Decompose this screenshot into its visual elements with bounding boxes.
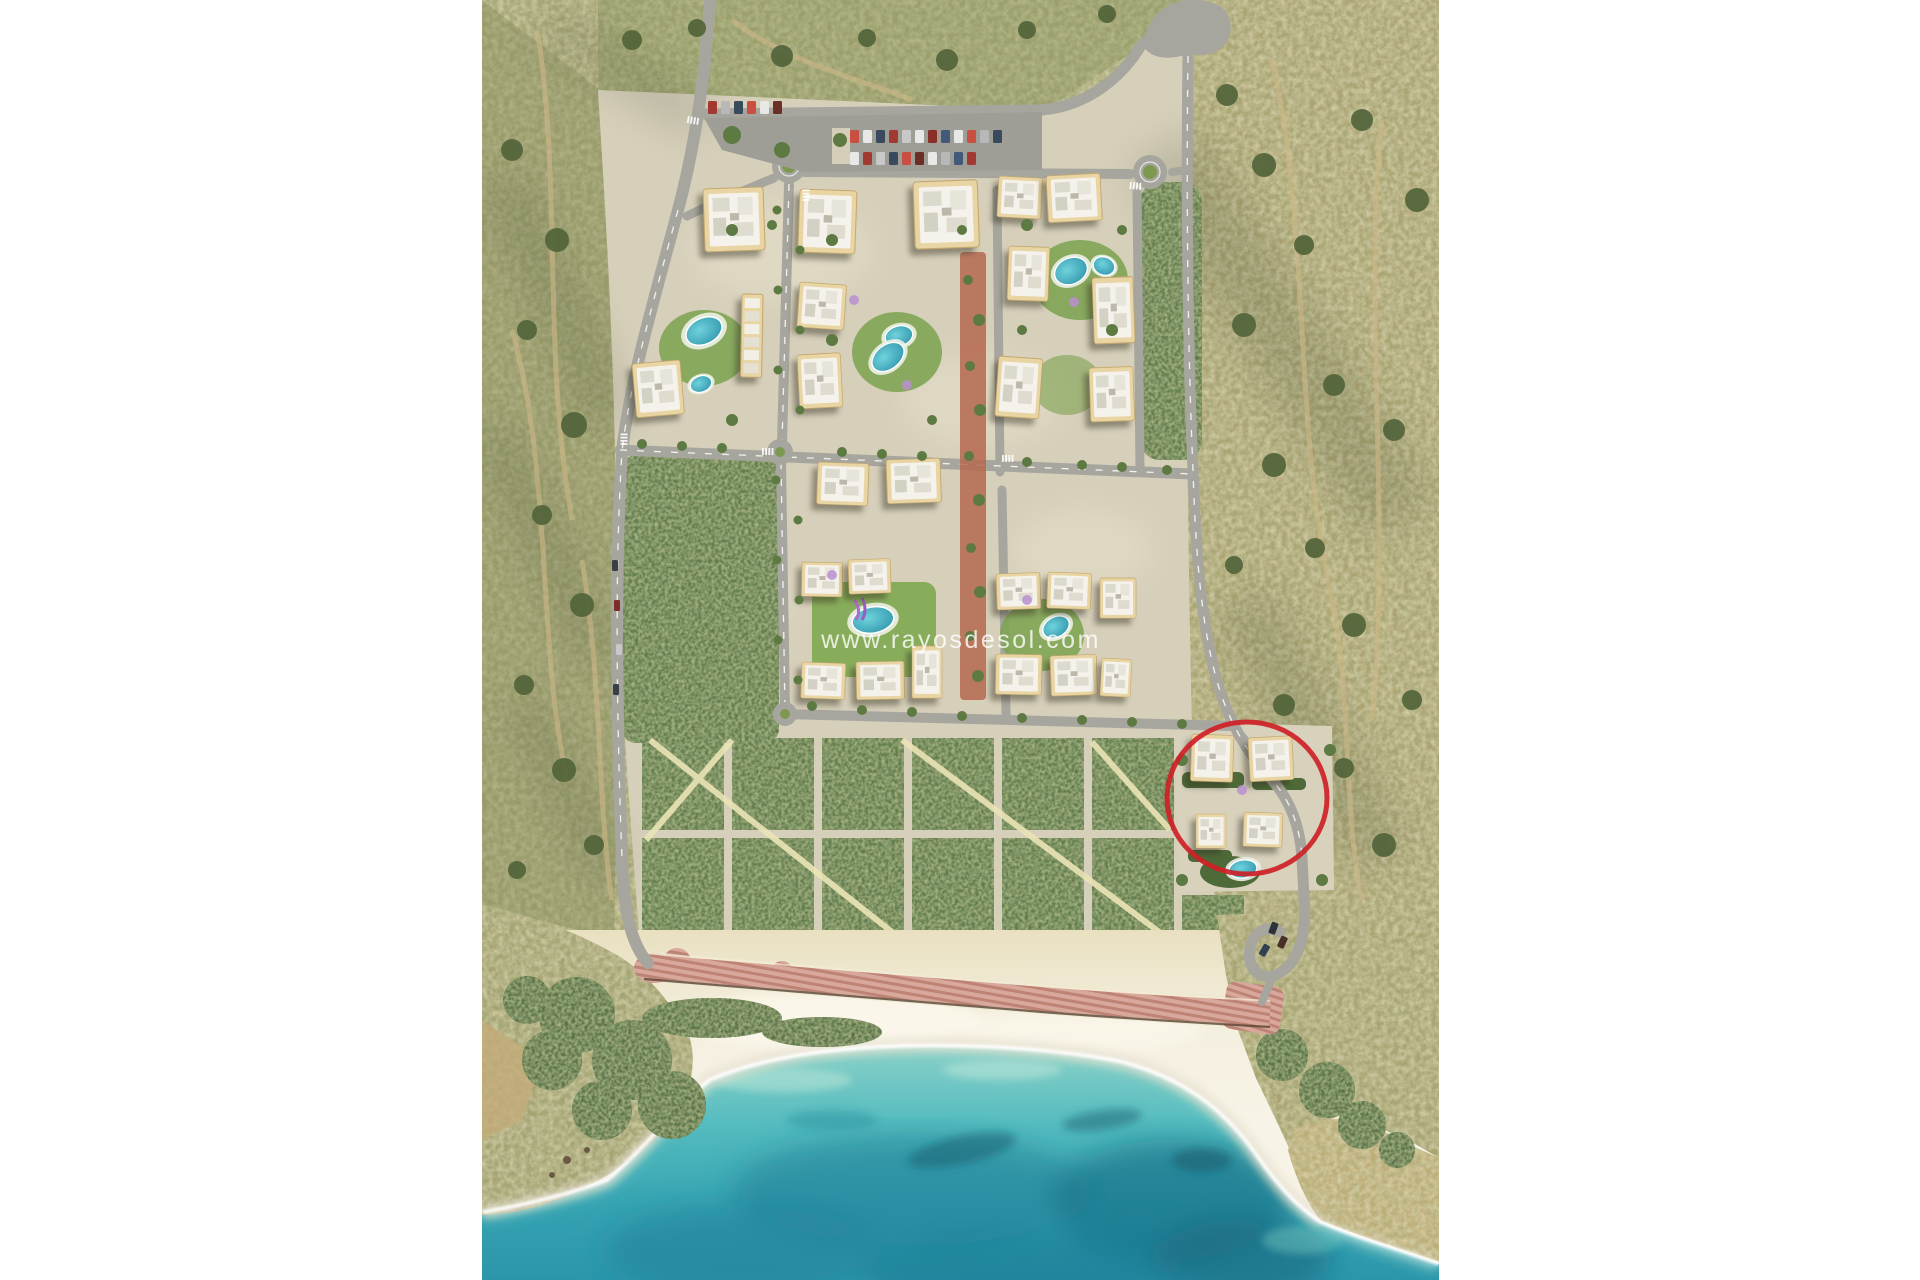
aerial-photo-svg: www.rayosdesol.com	[482, 0, 1439, 1280]
watermark-text: www.rayosdesol.com	[820, 626, 1101, 654]
aerial-photo: www.rayosdesol.com	[482, 0, 1439, 1280]
screenshot-canvas: www.rayosdesol.com	[0, 0, 1920, 1280]
